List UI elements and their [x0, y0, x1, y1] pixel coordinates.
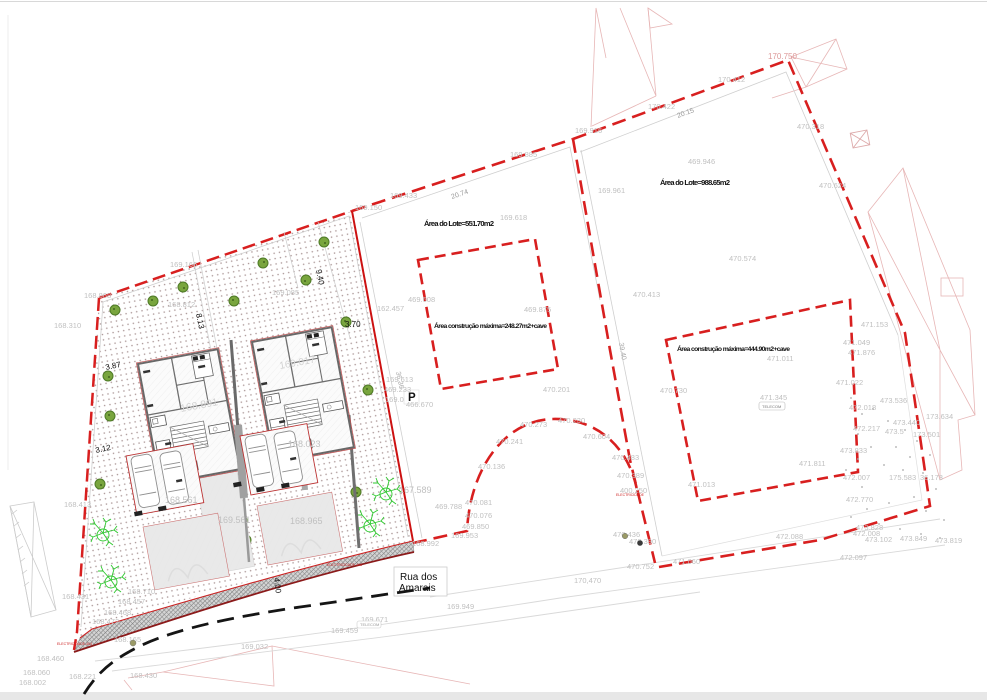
svg-text:168.310: 168.310: [54, 321, 81, 330]
svg-text:36.173: 36.173: [920, 473, 943, 482]
svg-text:173.634: 173.634: [926, 412, 953, 421]
svg-text:470.136: 470.136: [478, 462, 505, 471]
svg-text:473.5: 473.5: [885, 427, 904, 436]
svg-text:471.153: 471.153: [861, 320, 888, 329]
svg-text:472.217: 472.217: [853, 424, 880, 433]
svg-text:168.430: 168.430: [130, 671, 157, 680]
svg-text:170,470: 170,470: [574, 576, 601, 585]
svg-text:168.060: 168.060: [23, 668, 50, 677]
svg-text:ELECTRICIDADE: ELECTRICIDADE: [616, 493, 645, 497]
svg-text:470.624: 470.624: [819, 181, 846, 190]
svg-text:466.670: 466.670: [406, 400, 433, 409]
svg-text:Rua dos: Rua dos: [400, 572, 437, 583]
svg-text:470.390: 470.390: [629, 537, 656, 546]
svg-text:169.961: 169.961: [598, 186, 625, 195]
svg-text:471.060: 471.060: [673, 557, 700, 566]
svg-text:470.574: 470.574: [729, 254, 756, 263]
svg-text:169.953: 169.953: [451, 531, 478, 540]
svg-text:169.561: 169.561: [218, 515, 251, 525]
svg-text:471.049: 471.049: [843, 338, 870, 347]
svg-text:472.097: 472.097: [840, 553, 867, 562]
svg-text:169.032: 169.032: [241, 642, 268, 651]
svg-text:168.868: 168.868: [84, 291, 111, 300]
svg-text:469.850: 469.850: [462, 522, 489, 531]
svg-text:Área do Lote=988.65m2: Área do Lote=988.65m2: [660, 178, 730, 187]
svg-text:169,613: 169,613: [386, 375, 413, 384]
svg-text:168.472: 168.472: [92, 617, 119, 626]
svg-text:Amarais: Amarais: [399, 583, 436, 594]
svg-text:169.0: 169.0: [385, 395, 404, 404]
svg-text:473.833: 473.833: [840, 446, 867, 455]
svg-text:170.412: 170.412: [718, 75, 745, 84]
svg-text:173.501: 173.501: [913, 430, 940, 439]
svg-text:471.345: 471.345: [760, 393, 787, 402]
svg-text:472.007: 472.007: [843, 473, 870, 482]
svg-text:473.849: 473.849: [900, 534, 927, 543]
svg-text:470.483: 470.483: [612, 453, 639, 462]
svg-text:168.992: 168.992: [412, 539, 439, 548]
svg-text:470.230: 470.230: [558, 416, 585, 425]
svg-text:472.088: 472.088: [776, 532, 803, 541]
svg-text:470.318: 470.318: [797, 122, 824, 131]
svg-text:169.433: 169.433: [390, 191, 417, 200]
svg-text:470.076: 470.076: [465, 511, 492, 520]
svg-text:TELECOM: TELECOM: [360, 622, 379, 627]
svg-text:471.013: 471.013: [688, 480, 715, 489]
svg-text:Área construção máxima=444.90m: Área construção máxima=444.90m2+cave: [677, 344, 790, 353]
svg-text:ELECTRICIDADE-406: ELECTRICIDADE-406: [327, 563, 362, 567]
svg-text:470.201: 470.201: [543, 385, 570, 394]
svg-text:168.457: 168.457: [118, 597, 145, 606]
svg-text:470.081: 470.081: [465, 498, 492, 507]
svg-text:169.618: 169.618: [500, 213, 527, 222]
svg-text:TELECOM: TELECOM: [762, 404, 781, 409]
svg-text:473.102: 473.102: [865, 535, 892, 544]
svg-text:469.233: 469.233: [384, 385, 411, 394]
svg-text:168.468: 168.468: [104, 608, 131, 617]
svg-text:472.770: 472.770: [846, 495, 873, 504]
svg-text:168.561: 168.561: [165, 495, 198, 505]
svg-text:469.608: 469.608: [408, 295, 435, 304]
svg-text:162.457: 162.457: [377, 304, 404, 313]
svg-text:167.589: 167.589: [399, 485, 432, 495]
svg-text:168.002: 168.002: [19, 678, 46, 687]
svg-text:168.965: 168.965: [290, 516, 323, 526]
svg-text:Área do Lote=551.70m2: Área do Lote=551.70m2: [424, 219, 494, 228]
svg-text:471.011: 471.011: [767, 354, 794, 363]
svg-text:471.876: 471.876: [848, 348, 875, 357]
svg-text:175.583: 175.583: [889, 473, 916, 482]
svg-text:168.165: 168.165: [114, 635, 141, 644]
svg-text:469.788: 469.788: [435, 502, 462, 511]
svg-text:470.241: 470.241: [496, 437, 523, 446]
svg-text:168.460: 168.460: [37, 654, 64, 663]
svg-text:169.885: 169.885: [510, 150, 537, 159]
svg-text:168.023: 168.023: [288, 439, 321, 449]
svg-text:471.811: 471.811: [799, 459, 826, 468]
svg-text:168.431: 168.431: [62, 592, 89, 601]
svg-text:470.273: 470.273: [520, 420, 547, 429]
svg-text:169.166: 169.166: [170, 260, 197, 269]
svg-text:168.221: 168.221: [69, 672, 96, 681]
svg-text:470.752: 470.752: [627, 562, 654, 571]
svg-text:170.750: 170.750: [768, 52, 797, 61]
svg-text:470.730: 470.730: [660, 386, 687, 395]
svg-text:471.022: 471.022: [836, 378, 863, 387]
svg-text:469.875: 469.875: [524, 305, 551, 314]
svg-text:Área construção máxima=248.27m: Área construção máxima=248.27m2+cave: [434, 321, 547, 330]
svg-text:170.422: 170.422: [648, 102, 675, 111]
svg-text:470.604: 470.604: [583, 432, 610, 441]
svg-text:3.70: 3.70: [345, 320, 361, 329]
svg-text:169.150: 169.150: [355, 203, 382, 212]
svg-text:168.413: 168.413: [64, 500, 91, 509]
svg-text:473.819: 473.819: [935, 536, 962, 545]
svg-text:168.710: 168.710: [128, 587, 155, 596]
svg-text:469.946: 469.946: [688, 157, 715, 166]
svg-text:470.389: 470.389: [617, 471, 644, 480]
svg-text:ELECTRICIDADE-404: ELECTRICIDADE-404: [57, 642, 92, 646]
svg-text:168.812: 168.812: [168, 300, 195, 309]
svg-text:169.916: 169.916: [575, 126, 602, 135]
svg-text:169.949: 169.949: [447, 602, 474, 611]
svg-text:169.459: 169.459: [331, 626, 358, 635]
svg-text:470.413: 470.413: [633, 290, 660, 299]
svg-text:472.018: 472.018: [849, 403, 876, 412]
svg-text:473.440: 473.440: [893, 418, 920, 427]
svg-text:169.085: 169.085: [272, 288, 299, 297]
svg-text:473.536: 473.536: [880, 396, 907, 405]
